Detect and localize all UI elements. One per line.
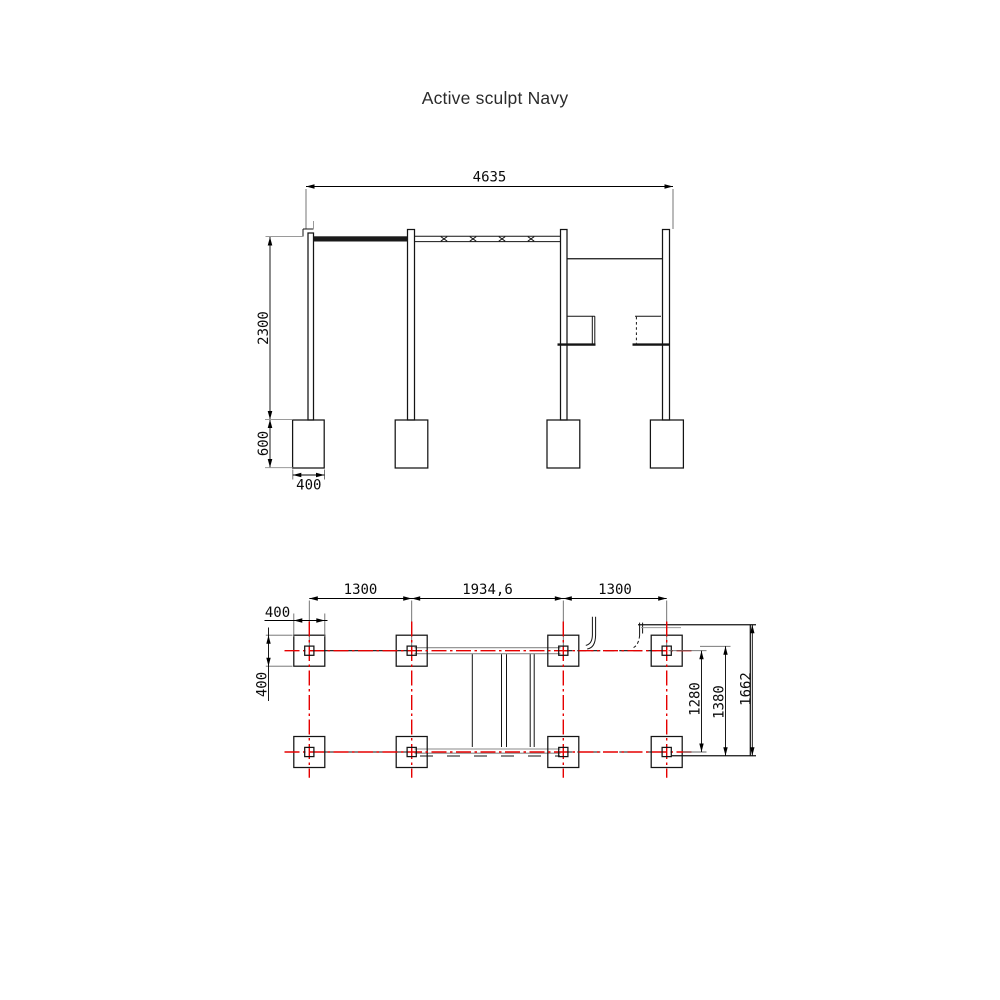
dim-overall-width: 4635 xyxy=(473,170,507,186)
plan-footings xyxy=(294,635,682,767)
technical-drawing-canvas: 4635 2300 600 400 xyxy=(0,0,1000,1000)
dim-footing-width: 400 xyxy=(296,478,321,494)
footing-3 xyxy=(547,420,580,468)
plan-dimensions: 1300 1934,6 1300 400 400 xyxy=(255,582,755,756)
dim-row-spacing: 1280 xyxy=(688,682,704,716)
plan-rungs xyxy=(472,654,534,747)
elevation-footings xyxy=(293,420,684,468)
footing-4 xyxy=(650,420,683,468)
dim-frame-depth: 1380 xyxy=(712,685,728,719)
elevation-structure xyxy=(293,229,684,468)
step-platform-right xyxy=(633,316,670,344)
footing-2 xyxy=(395,420,428,468)
rung-end-marks xyxy=(441,237,534,242)
dim-overall-depth: 1662 xyxy=(738,672,754,706)
step-platform-left xyxy=(558,316,596,344)
post-4 xyxy=(663,230,670,421)
dim-bay-right: 1300 xyxy=(598,582,632,598)
post-1 xyxy=(308,233,314,420)
handle-hooks xyxy=(586,617,643,649)
post-2 xyxy=(408,230,415,421)
dim-plan-footing-height: 400 xyxy=(255,672,271,697)
dim-bay-left: 1300 xyxy=(344,582,378,598)
plan-posts xyxy=(305,646,672,757)
footing-1 xyxy=(293,420,325,468)
dim-height: 2300 xyxy=(256,311,272,345)
dim-plan-footing-width: 400 xyxy=(265,605,290,621)
monkey-bar-rail xyxy=(415,236,561,241)
post-3 xyxy=(561,230,568,421)
drawing-sheet: Active sculpt Navy xyxy=(0,0,1000,1000)
plan-rails xyxy=(415,648,561,756)
dim-footing-depth: 600 xyxy=(256,431,272,456)
pullup-bar xyxy=(314,236,408,241)
plan-view: 1300 1934,6 1300 400 400 xyxy=(255,582,757,778)
dim-bay-middle: 1934,6 xyxy=(462,582,513,598)
elevation-view: 4635 2300 600 400 xyxy=(256,170,683,494)
elevation-dimensions: 4635 2300 600 400 xyxy=(256,170,673,494)
plan-centerlines xyxy=(285,622,693,778)
